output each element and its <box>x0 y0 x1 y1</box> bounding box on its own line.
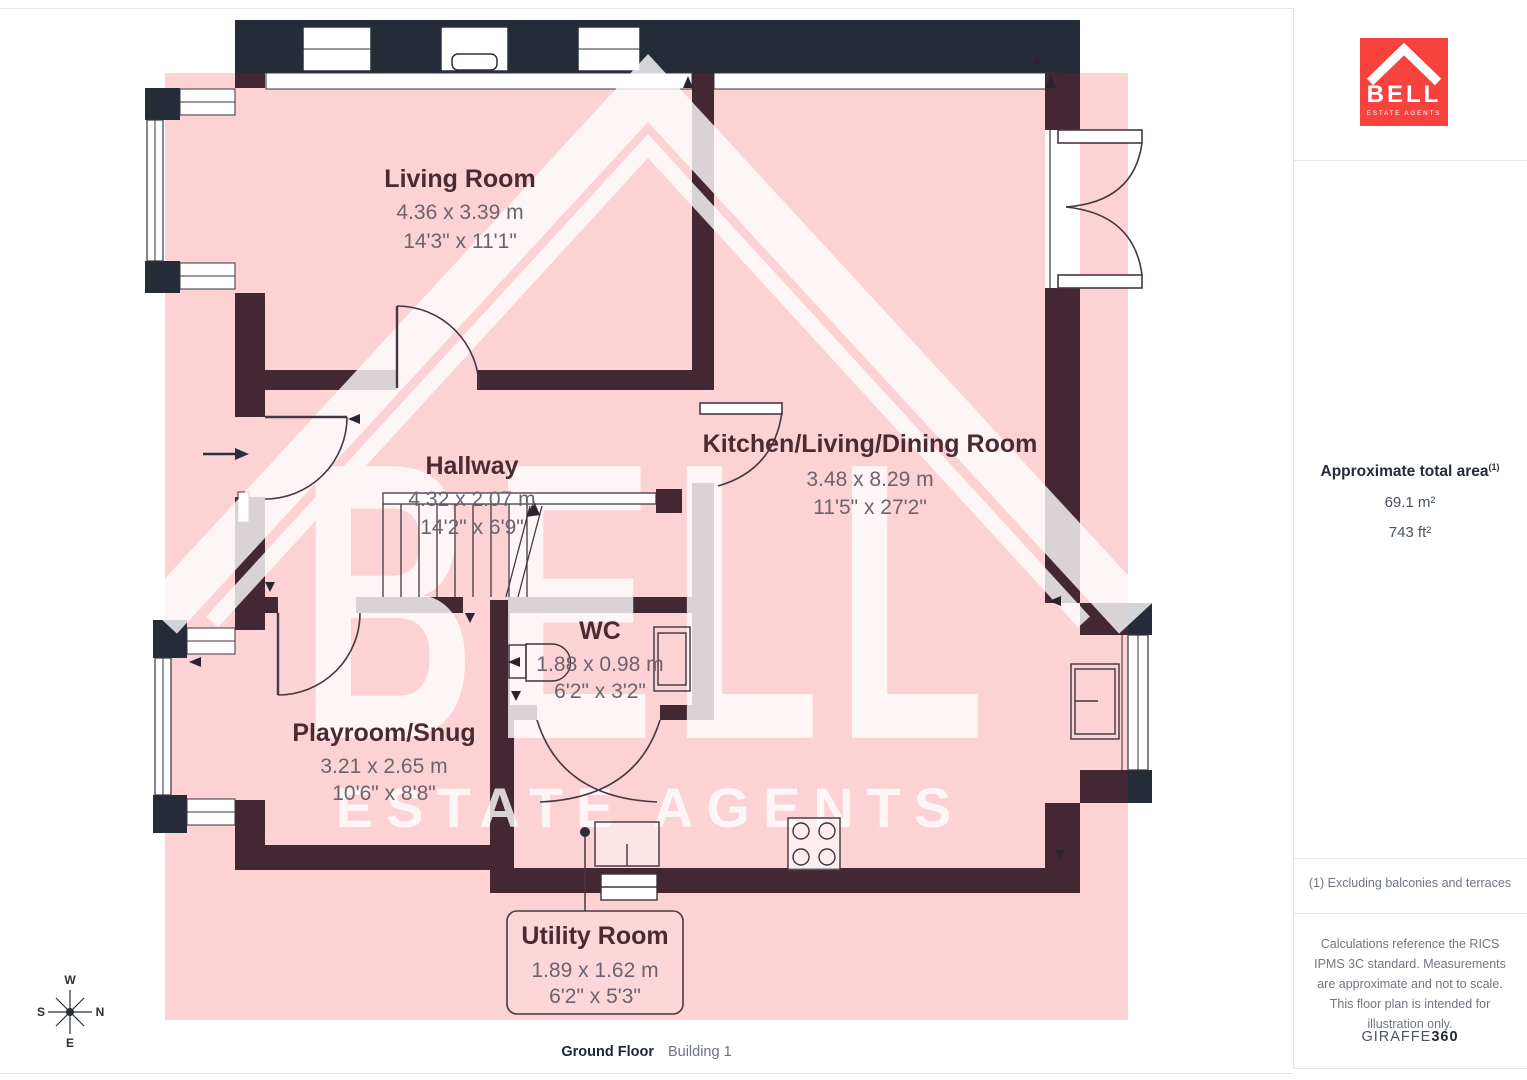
compass-north-label: N <box>96 1005 105 1019</box>
svg-text:WC: WC <box>579 617 621 645</box>
svg-text:6'2" x 3'2": 6'2" x 3'2" <box>554 680 646 703</box>
total-area-block: Approximate total area(1) 69.1 m² 743 ft… <box>1293 462 1527 541</box>
svg-text:Playroom/Snug: Playroom/Snug <box>292 719 475 747</box>
hob-icon <box>788 818 840 870</box>
area-footnote: (1) Excluding balconies and terraces <box>1303 876 1517 890</box>
svg-text:10'6" x 8'8": 10'6" x 8'8" <box>332 782 436 805</box>
footnote-marker: (1) <box>1488 462 1499 472</box>
building-label: Building 1 <box>668 1044 732 1060</box>
total-area-title: Approximate total area(1) <box>1293 462 1527 481</box>
svg-text:11'5" x 27'2": 11'5" x 27'2" <box>813 496 927 519</box>
bell-logo: BELL ESTATE AGENTS <box>1360 38 1448 126</box>
logo-tagline: ESTATE AGENTS <box>1367 110 1441 117</box>
disclaimer-text: Calculations reference the RICS IPMS 3C … <box>1309 934 1511 1034</box>
entrance-step <box>601 874 657 900</box>
plan-footer: Ground Floor Building 1 <box>0 1044 1293 1060</box>
compass-west-label: W <box>64 973 76 987</box>
utility-appliance-fixture <box>595 822 659 866</box>
logo-name: BELL <box>1367 83 1442 107</box>
room-label-hallway: Hallway 4.32 x 2.07 m 14'2" x 6'9" <box>408 452 535 539</box>
total-area-metric: 69.1 m² <box>1293 494 1527 511</box>
floor-plan: BELL ESTATE AGENTS <box>0 0 1293 1080</box>
svg-text:3.48 x 8.29 m: 3.48 x 8.29 m <box>806 468 933 491</box>
sidebar-divider <box>1293 1068 1527 1069</box>
svg-text:Living Room: Living Room <box>384 165 535 193</box>
svg-text:1.89 x 1.62 m: 1.89 x 1.62 m <box>531 959 658 982</box>
svg-text:14'3" x 11'1": 14'3" x 11'1" <box>403 230 517 253</box>
svg-text:4.36 x 3.39 m: 4.36 x 3.39 m <box>396 201 523 224</box>
total-area-imperial: 743 ft² <box>1293 524 1527 541</box>
floor-plan-canvas: BELL ESTATE AGENTS <box>0 0 1293 1080</box>
floor-label: Ground Floor <box>561 1044 654 1060</box>
svg-text:Utility Room: Utility Room <box>521 922 668 950</box>
room-label-living-room: Living Room 4.36 x 3.39 m 14'3" x 11'1" <box>384 165 535 253</box>
room-label-utility-room: Utility Room 1.89 x 1.62 m 6'2" x 5'3" <box>507 911 683 1014</box>
info-sidebar: BELL ESTATE AGENTS Approximate total are… <box>1293 0 1527 1080</box>
compass-south-label: S <box>37 1005 45 1019</box>
giraffe360-brand: GIRAFFE360 <box>1293 1029 1527 1045</box>
svg-text:6'2" x 5'3": 6'2" x 5'3" <box>549 985 641 1008</box>
svg-text:3.21 x 2.65 m: 3.21 x 2.65 m <box>320 755 447 778</box>
svg-text:Kitchen/Living/Dining Room: Kitchen/Living/Dining Room <box>703 430 1038 458</box>
sidebar-divider <box>1293 160 1527 161</box>
footer-divider <box>0 1073 1293 1074</box>
sidebar-divider <box>1293 858 1527 859</box>
floorplan-page: BELL ESTATE AGENTS <box>0 0 1527 1080</box>
svg-text:4.32 x 2.07 m: 4.32 x 2.07 m <box>408 488 535 511</box>
svg-text:Hallway: Hallway <box>425 452 518 480</box>
sidebar-divider <box>1293 913 1527 914</box>
svg-text:14'2" x 6'9": 14'2" x 6'9" <box>420 516 524 539</box>
compass-rose-icon: W N E S <box>37 973 104 1050</box>
svg-text:1.88 x 0.98 m: 1.88 x 0.98 m <box>536 653 663 676</box>
